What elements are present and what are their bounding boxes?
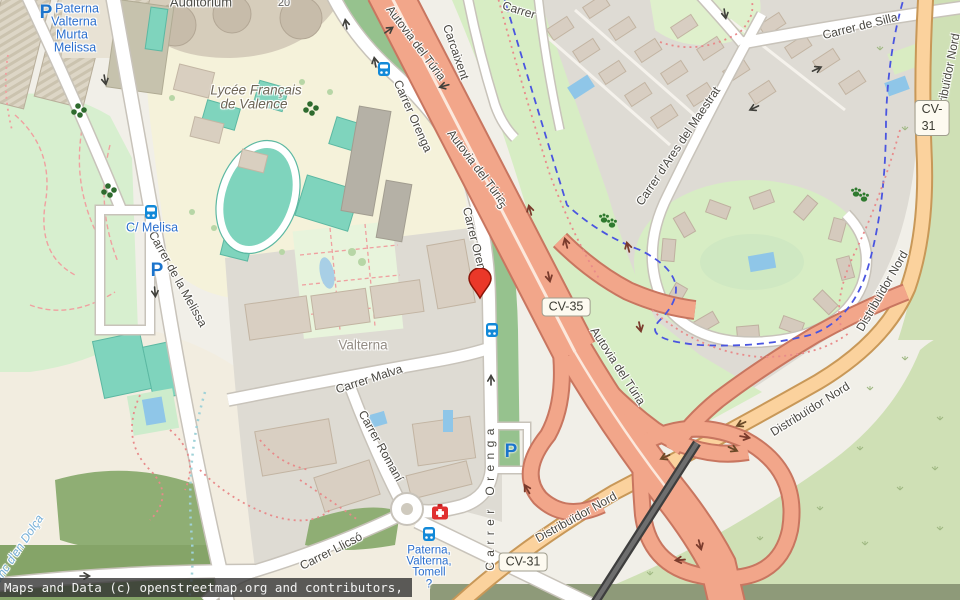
road-badge-cv35: CV-35	[542, 298, 591, 317]
map-artwork	[0, 0, 960, 600]
bus-stop-icon	[144, 204, 158, 220]
map-canvas[interactable]: Autovia del Túria Autovia del Túria Auto…	[0, 0, 960, 600]
attribution-bar[interactable]: Maps and Data (c) openstreetmap.org and …	[0, 578, 412, 597]
road-badge-cv31-s: CV-31	[499, 553, 548, 572]
bus-stop-icon	[377, 61, 391, 77]
pharmacy-icon	[431, 504, 449, 521]
bus-stop-icon	[422, 526, 436, 542]
map-marker[interactable]	[467, 268, 493, 300]
road-badge-cv31-ne: CV-31	[915, 100, 950, 136]
bus-stop-icon	[485, 322, 499, 338]
